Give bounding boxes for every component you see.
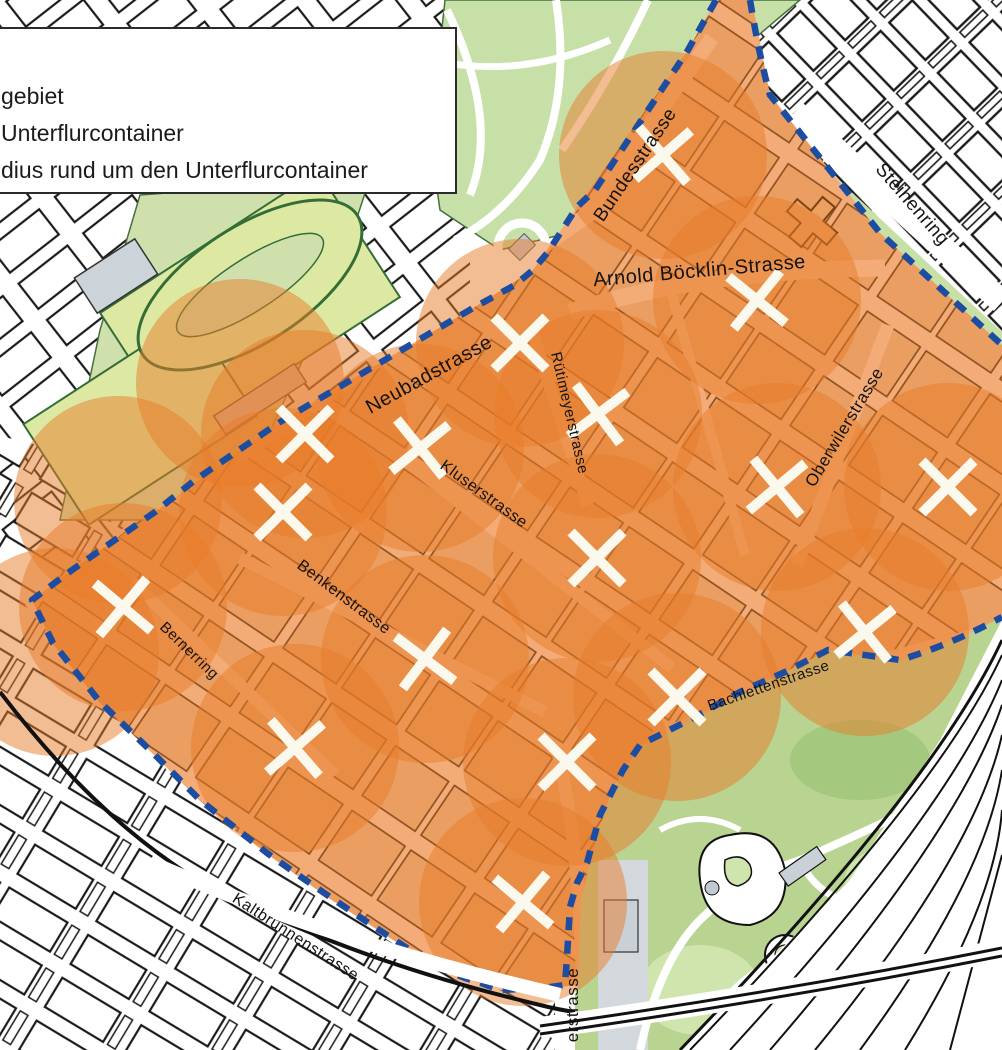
legend-item-container-location: Unterflurcontainer (1, 120, 184, 146)
legend-item-pilot-area: gebiet (1, 83, 64, 109)
map-canvas[interactable]: BundesstrasseSteinenringArnold Böcklin-S… (0, 0, 1002, 1050)
street-label: erstrasse (563, 968, 582, 1042)
legend: gebiet Unterflurcontainer dius rund um d… (0, 28, 456, 193)
legend-item-radius: dius rund um den Unterflurcontainer (1, 157, 368, 183)
